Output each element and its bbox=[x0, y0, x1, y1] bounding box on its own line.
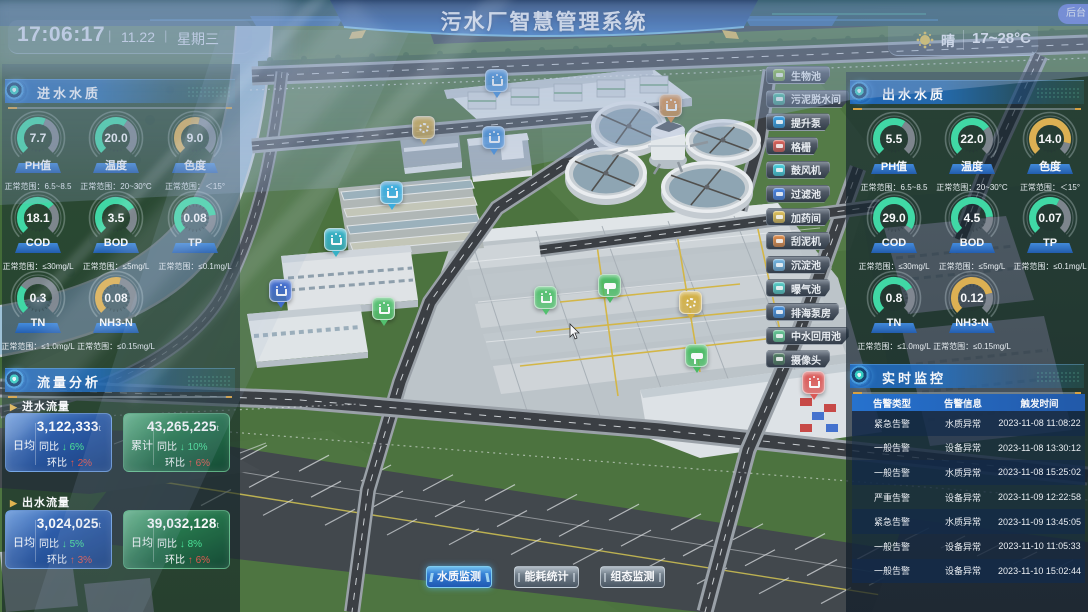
svg-text:22.0: 22.0 bbox=[960, 132, 984, 146]
svg-text:3.5: 3.5 bbox=[108, 211, 125, 225]
svg-text:4.5: 4.5 bbox=[964, 211, 981, 225]
svg-text:0.07: 0.07 bbox=[1038, 211, 1062, 225]
svg-text:18.1: 18.1 bbox=[26, 211, 50, 225]
svg-text:0.8: 0.8 bbox=[886, 291, 903, 305]
svg-text:5.5: 5.5 bbox=[886, 132, 903, 146]
svg-text:29.0: 29.0 bbox=[882, 211, 906, 225]
svg-text:20.0: 20.0 bbox=[104, 131, 128, 145]
svg-text:9.0: 9.0 bbox=[187, 131, 204, 145]
svg-text:0.12: 0.12 bbox=[960, 291, 984, 305]
svg-text:7.7: 7.7 bbox=[30, 131, 47, 145]
svg-text:0.08: 0.08 bbox=[104, 291, 128, 305]
svg-text:0.08: 0.08 bbox=[183, 211, 207, 225]
svg-text:0.3: 0.3 bbox=[30, 291, 47, 305]
svg-text:14.0: 14.0 bbox=[1038, 132, 1062, 146]
